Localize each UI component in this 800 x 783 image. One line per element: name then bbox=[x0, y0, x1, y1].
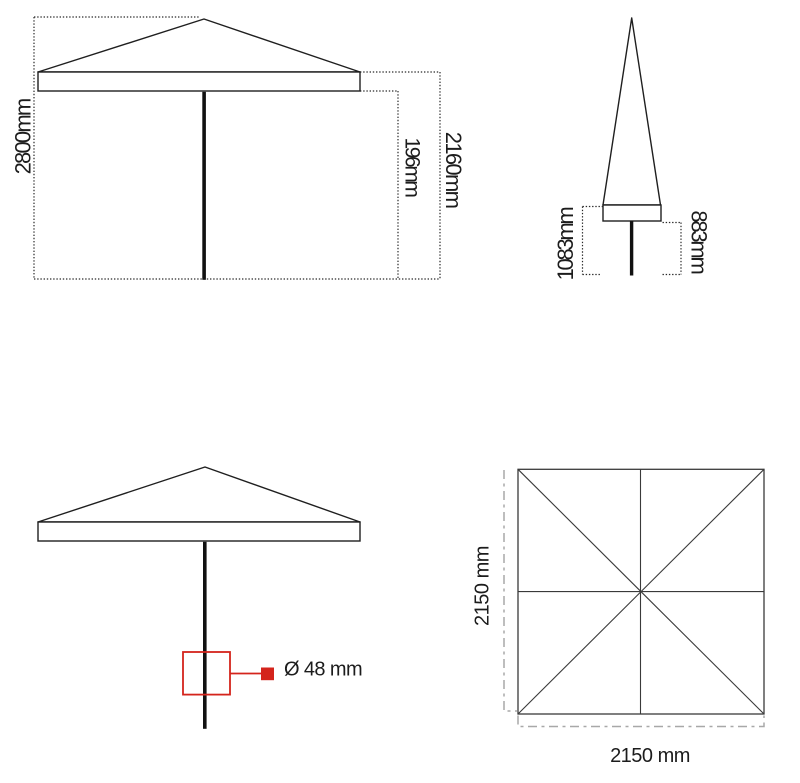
svg-text:2160mm: 2160mm bbox=[441, 132, 466, 208]
svg-text:2150 mm: 2150 mm bbox=[472, 546, 494, 626]
svg-text:2150 mm: 2150 mm bbox=[610, 745, 690, 767]
svg-text:2800mm: 2800mm bbox=[11, 99, 36, 174]
svg-text:883mm: 883mm bbox=[687, 210, 712, 273]
svg-text:Ø 48 mm: Ø 48 mm bbox=[284, 659, 362, 681]
svg-text:1083mm: 1083mm bbox=[553, 208, 578, 281]
svg-text:196mm: 196mm bbox=[401, 137, 424, 197]
